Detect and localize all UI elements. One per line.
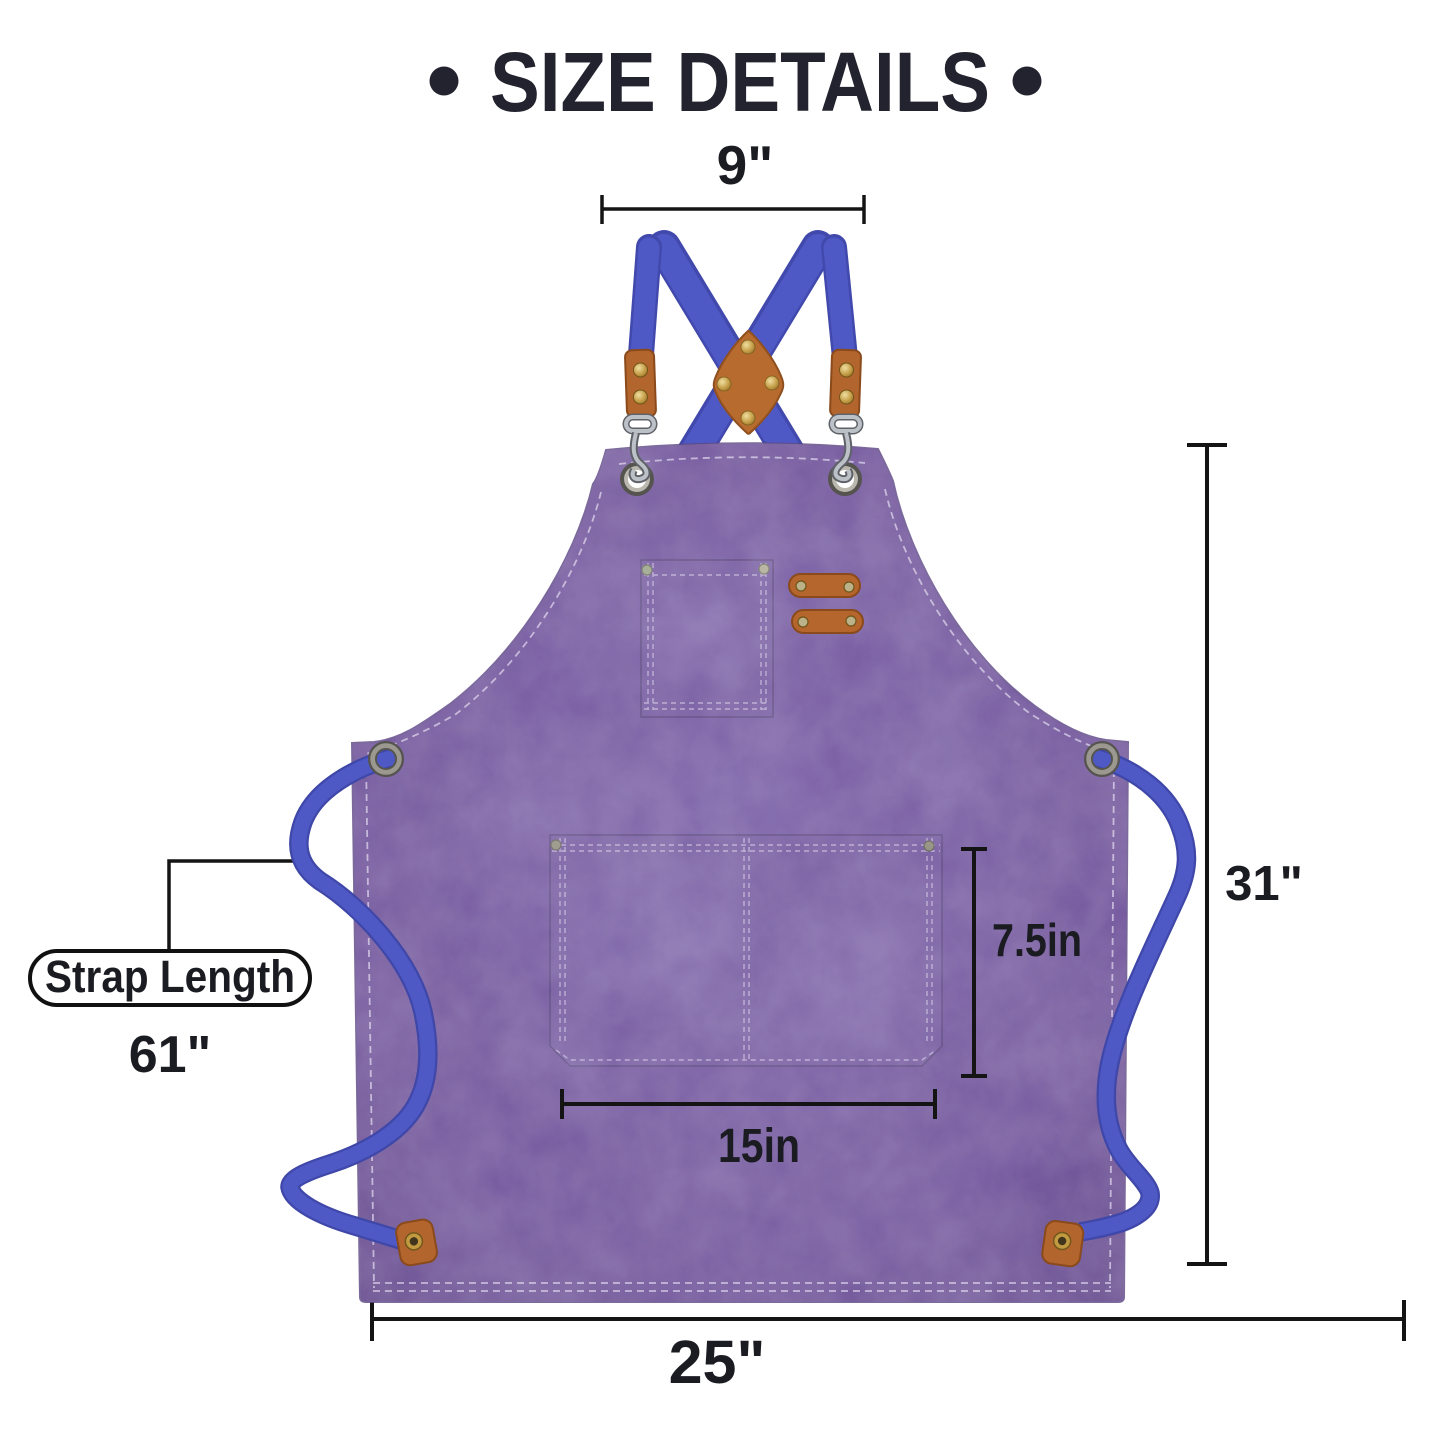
svg-text:15in: 15in (718, 1120, 800, 1173)
svg-text:7.5in: 7.5in (992, 914, 1082, 966)
svg-text:9": 9" (717, 134, 774, 196)
svg-text:61": 61" (129, 1026, 212, 1084)
svg-text:31": 31" (1225, 857, 1303, 911)
svg-text:25": 25" (669, 1328, 766, 1396)
svg-text:SIZE DETAILS: SIZE DETAILS (490, 35, 990, 129)
svg-text:Strap Length: Strap Length (45, 951, 295, 1002)
